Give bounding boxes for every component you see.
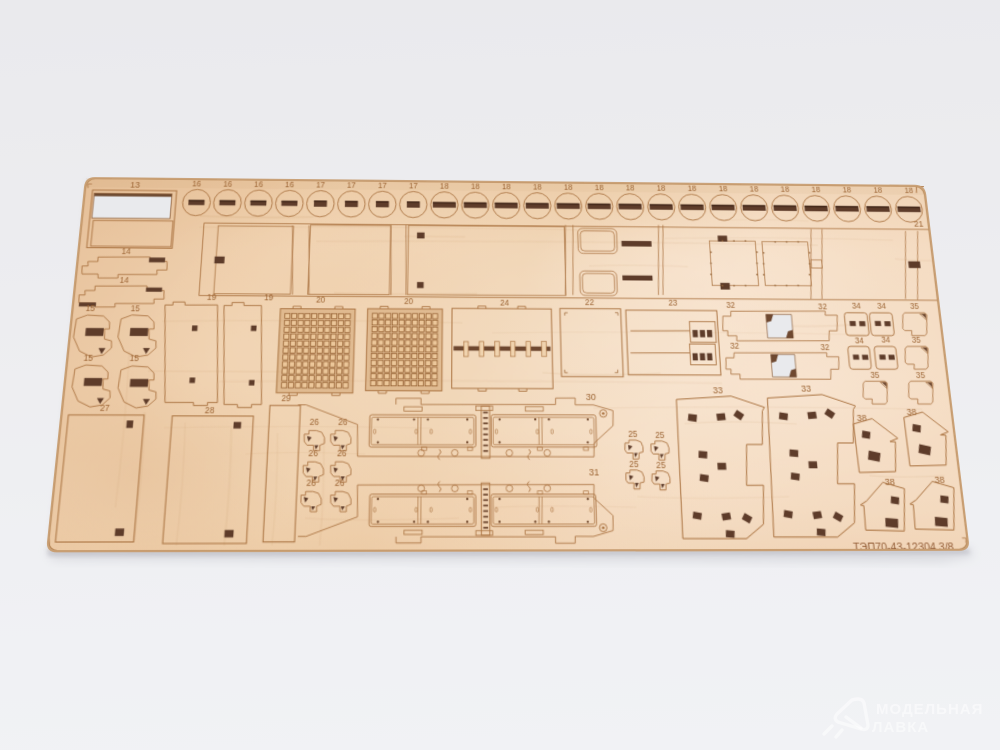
svg-text:ЛАВКА: ЛАВКА (872, 719, 929, 736)
svg-text:МОДЕЛЬНАЯ: МОДЕЛЬНАЯ (876, 701, 983, 718)
